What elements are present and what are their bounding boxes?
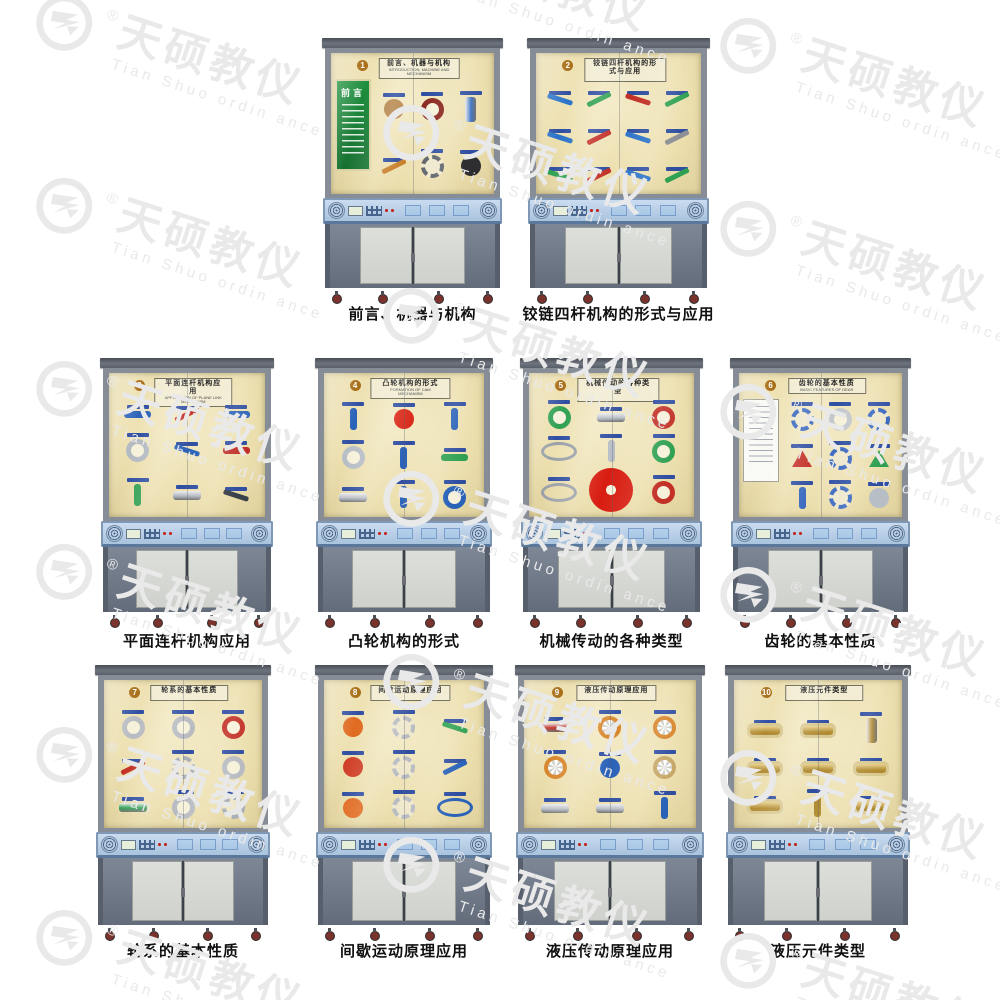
base-cabinet — [530, 224, 707, 288]
glass-door-divider — [818, 680, 819, 828]
exhibit-item — [214, 433, 258, 462]
exhibit-model-shape — [625, 131, 651, 144]
control-panel — [731, 521, 910, 547]
glass-door-divider — [821, 373, 822, 517]
product-caption: 液压元件类型 — [693, 940, 943, 961]
item-label-plate — [791, 481, 813, 485]
panel-diagrams — [590, 839, 679, 850]
exhibit-model-shape — [465, 97, 476, 122]
speaker-grille-icon — [101, 836, 118, 853]
exhibit-item — [536, 468, 583, 512]
item-label-plate — [544, 717, 566, 721]
exhibit-model-shape — [867, 408, 890, 431]
glass-door-divider — [619, 53, 620, 194]
exhibit-model-shape — [546, 131, 572, 144]
stop-button — [584, 843, 587, 846]
cabinet-subtitle: FORMATION OF CAM MECHANISM — [378, 388, 442, 397]
exhibit-item — [211, 750, 256, 779]
keypad — [359, 529, 375, 539]
glass-door-divider — [404, 680, 405, 828]
tianshuo-logo-icon — [26, 534, 102, 610]
exhibit-item — [640, 750, 689, 779]
base-cabinet — [518, 858, 702, 925]
panel-diagrams — [390, 839, 467, 850]
cabinet-title-plate: 轮系的基本性质 — [150, 685, 228, 701]
power-button — [385, 209, 388, 212]
cabinet-door-left — [352, 550, 403, 608]
exhibit-model-shape — [343, 717, 363, 737]
display-case: 7 轮系的基本性质 — [98, 675, 268, 832]
display-case: 6 齿轮的基本性质 BASIC FEATURES OF GEAR — [733, 368, 908, 521]
power-button — [378, 843, 381, 846]
cabinet-figure: 10 液压元件类型 — [728, 665, 908, 933]
item-label-plate — [754, 720, 776, 724]
cabinet-title: 轮系的基本性质 — [158, 687, 220, 695]
speaker-grille-icon — [687, 202, 704, 219]
control-panel — [521, 521, 702, 547]
stop-button — [589, 532, 592, 535]
exhibit-model-shape — [625, 169, 651, 182]
tianshuo-logo-icon — [710, 191, 786, 267]
exhibit-model-shape — [652, 406, 675, 429]
cabinet-figure: 8 间歇运动原理应用 — [318, 665, 490, 933]
cabinet-door-right — [819, 861, 872, 921]
watermark-text-cn: 天硕教仪 — [112, 191, 309, 296]
exhibit-item — [214, 405, 258, 418]
lcd-display — [348, 206, 363, 216]
cabinet-doors — [764, 861, 873, 921]
item-label-plate — [548, 477, 570, 481]
cabinet-figure: 9 液压传动原理应用 — [518, 665, 702, 933]
exhibit-model-shape — [541, 483, 577, 502]
exhibit-item — [785, 402, 820, 431]
exhibit-model-shape — [442, 721, 468, 734]
item-label-plate — [127, 405, 149, 409]
cabinet-title: 平面连杆机构应用 — [162, 380, 224, 396]
keypad — [139, 840, 155, 850]
item-label-plate — [444, 448, 466, 452]
cabinet-door-right — [613, 550, 665, 608]
speaker-grille-icon — [106, 525, 123, 542]
exhibit-model-shape — [437, 798, 473, 817]
product-caption: 铰链四杆机构的形式与应用 — [495, 303, 742, 324]
watermark-text-cn: 天硕教仪 — [112, 8, 309, 113]
exhibit-model-shape — [661, 797, 668, 819]
lcd-display — [546, 529, 561, 539]
glass-door-divider — [612, 373, 613, 517]
tianshuo-logo-icon — [26, 900, 102, 976]
cabinet-doors — [360, 227, 466, 284]
item-label-plate — [868, 402, 890, 406]
speaker-grille-icon — [321, 836, 338, 853]
exhibit-item — [111, 750, 156, 779]
speaker-grille-icon — [682, 836, 699, 853]
exhibit-item — [542, 167, 577, 178]
control-panel — [96, 832, 270, 858]
cabinet-cap — [527, 38, 710, 48]
exhibit-model-shape — [541, 442, 577, 461]
item-label-plate — [868, 444, 890, 448]
tianshuo-logo-icon — [26, 0, 102, 61]
exhibit-model-shape — [343, 798, 363, 818]
exhibit-item — [847, 712, 895, 743]
exhibit-item — [823, 441, 858, 470]
exhibit-item — [214, 478, 258, 506]
lcd-display — [756, 529, 771, 539]
exhibit-model-shape — [124, 411, 151, 418]
registered-mark: ® — [104, 189, 125, 210]
exhibit-item — [741, 712, 789, 743]
exhibit-item — [582, 167, 617, 178]
exhibit-item — [531, 791, 580, 819]
caster-wheel — [842, 618, 852, 628]
exhibit-model-shape — [829, 486, 852, 509]
exhibit-items — [783, 397, 898, 514]
caster-wheel — [370, 618, 380, 628]
cabinet-door-right — [405, 861, 456, 921]
cabinet-figure: 4 凸轮机构的形式 FORMATION OF CAM MECHANISM — [318, 358, 490, 620]
exhibit-model-shape — [421, 155, 444, 178]
watermark-text-en: Tian Shuo ordin ance — [793, 79, 1000, 164]
cabinet-title-plate: 液压传动原理应用 — [576, 685, 656, 701]
cabinet-doors — [352, 550, 456, 608]
tianshuo-logo-icon — [710, 8, 786, 84]
item-label-plate — [654, 710, 676, 714]
cabinet-door-left — [558, 550, 610, 608]
item-label-plate — [127, 433, 149, 437]
item-label-plate — [342, 751, 364, 755]
cabinet-cap — [725, 665, 911, 675]
exhibit-item — [377, 149, 412, 178]
exhibit-item — [640, 468, 687, 512]
cabinet-doors — [136, 550, 237, 608]
door-handle — [185, 576, 189, 585]
cabinet-door-left — [565, 227, 617, 284]
cabinet-title: 液压传动原理应用 — [584, 687, 648, 695]
cabinet-subtitle: INTRODUCTION, MACHINE AND MECHANISM — [386, 68, 452, 77]
exhibit-model-shape — [451, 408, 458, 430]
watermark-text: ®天硕教仪 Tian Shuo ordin ance — [90, 6, 340, 141]
cabinet-cap — [95, 665, 271, 675]
cabinet-title: 间歇运动原理应用 — [378, 687, 442, 695]
cabinet-doors — [554, 861, 665, 921]
item-label-plate — [829, 402, 851, 406]
display-case: 1 前言、机器与机构 INTRODUCTION, MACHINE AND MEC… — [325, 48, 500, 198]
watermark-text-en: Tian Shuo ordin ance — [793, 262, 1000, 347]
exhibit-model-shape — [222, 716, 245, 739]
door-handle — [411, 253, 415, 262]
cabinet-cap — [315, 358, 493, 368]
exhibit-item — [621, 129, 656, 140]
power-button — [578, 843, 581, 846]
tianshuo-logo-icon — [26, 351, 102, 427]
caster-wheel — [105, 931, 115, 941]
cabinet-title-plate: 间歇运动原理应用 — [370, 685, 450, 701]
exhibit-item — [331, 440, 377, 469]
exhibit-item — [582, 129, 617, 140]
registered-mark: ® — [104, 6, 125, 27]
cabinet-cap — [100, 358, 274, 368]
speaker-grille-icon — [328, 202, 345, 219]
exhibit-model-shape — [750, 802, 780, 811]
registered-mark: ® — [788, 29, 809, 50]
lcd-display — [341, 529, 356, 539]
exhibit-item — [542, 91, 577, 102]
exhibit-item — [331, 710, 377, 739]
display-case: 3 平面连杆机构应用 APPLICATION OF PLANE LINK MEC… — [103, 368, 271, 521]
exhibit-items — [375, 77, 490, 191]
caster-wheel — [110, 618, 120, 628]
cabinet-subtitle — [378, 695, 442, 699]
display-case: 2 铰链四杆机构的形式与应用 — [530, 48, 707, 198]
display-case: 8 间歇运动原理应用 — [318, 675, 490, 832]
door-handle — [402, 576, 406, 585]
exhibit-model-shape — [126, 439, 149, 462]
watermark: ®天硕教仪 Tian Shuo ordin ance — [710, 8, 1000, 164]
speaker-grille-icon — [321, 525, 338, 542]
tianshuo-logo-icon — [26, 717, 102, 793]
cabinet-cap — [315, 665, 493, 675]
item-label-plate — [868, 482, 890, 486]
lcd-display — [341, 840, 356, 850]
cabinet-cap — [520, 358, 703, 368]
caster-wheel — [425, 931, 435, 941]
keypad — [359, 840, 375, 850]
exhibit-model-shape — [119, 803, 147, 812]
exhibit-item — [823, 480, 858, 509]
registered-mark: ® — [788, 212, 809, 233]
cabinet-subtitle: BASIC FEATURES OF GEAR — [796, 388, 858, 392]
poster-text-lines — [749, 406, 773, 463]
exhibit-model-shape — [443, 486, 466, 509]
cabinet-door-left — [554, 861, 609, 921]
caster-wheel — [640, 294, 650, 304]
item-label-plate — [222, 790, 244, 794]
power-button — [583, 532, 586, 535]
exhibit-item — [432, 790, 478, 819]
keypad — [571, 206, 587, 216]
item-label-plate — [222, 710, 244, 714]
exhibit-model-shape — [792, 450, 812, 467]
caster-wheel — [425, 618, 435, 628]
cabinet-title: 铰链四杆机构的形式与应用 — [592, 60, 659, 76]
exhibit-item — [640, 400, 687, 429]
caster-wheel — [325, 618, 335, 628]
cabinet-subtitle — [793, 695, 855, 699]
caster-wheel — [378, 294, 388, 304]
watermark-text: ®天硕教仪 Tian Shuo ordin ance — [774, 29, 1000, 164]
cabinet-number-badge: 4 — [350, 380, 361, 391]
cabinet-title: 机械传动的各种类型 — [585, 380, 652, 396]
watermark-text-cn: 天硕教仪 — [796, 31, 993, 136]
exhibit-model-shape — [829, 408, 852, 431]
exhibit-model-shape — [750, 726, 780, 735]
product-caption: 齿轮的基本性质 — [698, 630, 943, 651]
exhibit-item — [331, 480, 377, 509]
cabinet-number-badge: 7 — [129, 687, 140, 698]
item-label-plate — [342, 440, 364, 444]
cabinet-number-badge: 2 — [562, 60, 573, 71]
speaker-grille-icon — [888, 836, 905, 853]
base-cabinet — [98, 858, 268, 925]
item-label-plate — [460, 91, 482, 95]
exhibit-item — [823, 402, 858, 431]
exhibit-item — [432, 750, 478, 779]
exhibit-model-shape — [222, 756, 245, 779]
cabinet-subtitle — [584, 695, 648, 699]
exhibit-item — [531, 710, 580, 739]
cabinet-cap — [322, 38, 503, 48]
cabinet-number-badge: 1 — [357, 60, 368, 71]
item-label-plate — [654, 791, 676, 795]
speaker-grille-icon — [526, 525, 543, 542]
watermark: ®天硕教仪 Tian Shuo ordin ance — [710, 923, 1000, 1000]
exhibit-model-shape — [856, 802, 886, 811]
control-panel — [101, 521, 273, 547]
exhibit-item — [454, 149, 489, 178]
exhibit-item — [660, 167, 695, 178]
exhibit-item — [432, 402, 478, 430]
cabinet-door-left — [352, 861, 403, 921]
display-case: 4 凸轮机构的形式 FORMATION OF CAM MECHANISM — [318, 368, 490, 521]
item-label-plate — [122, 710, 144, 714]
glass-door-divider — [610, 680, 611, 828]
exhibit-item — [432, 710, 478, 739]
door-handle — [617, 253, 621, 262]
stop-button — [384, 532, 387, 535]
item-label-plate — [421, 92, 443, 96]
exhibit-model-shape — [134, 484, 141, 506]
keypad — [774, 529, 790, 539]
speaker-grille-icon — [251, 525, 268, 542]
cabinet-door-right — [611, 861, 666, 921]
item-label-plate — [127, 478, 149, 482]
item-label-plate — [225, 405, 247, 409]
exhibit-item — [640, 710, 689, 739]
keypad — [769, 840, 785, 850]
chart-poster — [743, 399, 779, 514]
base-cabinet — [318, 547, 490, 612]
cabinet-doors — [352, 861, 456, 921]
cabinet-number-badge: 8 — [350, 687, 361, 698]
stop-button — [384, 843, 387, 846]
caster-wheel — [740, 618, 750, 628]
item-label-plate — [860, 712, 882, 716]
exhibit-item — [536, 434, 583, 463]
exhibit-item — [454, 91, 489, 122]
lcd-display — [541, 840, 556, 850]
cabinet-number-badge: 6 — [765, 380, 776, 391]
caster-wheel — [332, 294, 342, 304]
item-label-plate — [342, 711, 364, 715]
catalog-page: 1 前言、机器与机构 INTRODUCTION, MACHINE AND MEC… — [0, 0, 1000, 1000]
cabinet-door-right — [405, 550, 456, 608]
caster-wheel — [473, 931, 483, 941]
exhibit-model-shape — [866, 718, 877, 743]
exhibit-item — [211, 710, 256, 739]
exhibit-item — [111, 790, 156, 819]
exhibit-item — [542, 129, 577, 140]
exhibit-item — [621, 167, 656, 178]
exhibit-item — [531, 750, 580, 779]
caster-wheel — [434, 294, 444, 304]
door-handle — [181, 888, 185, 897]
caster-wheel — [251, 931, 261, 941]
exhibit-item — [536, 400, 583, 429]
exhibit-item — [331, 790, 377, 819]
exhibit-item — [785, 441, 820, 470]
exhibit-item — [660, 129, 695, 140]
exhibit-model-shape — [461, 156, 481, 176]
glass-door-divider — [183, 680, 184, 828]
exhibit-model-shape — [829, 447, 852, 470]
exhibit-item — [741, 758, 789, 773]
exhibit-item — [660, 91, 695, 102]
exhibit-model-shape — [548, 406, 571, 429]
caster-wheel — [633, 618, 643, 628]
item-label-plate — [653, 475, 675, 479]
cabinet-doors — [565, 227, 672, 284]
glass-door-divider — [187, 373, 188, 517]
cabinet-title-plate: 液压元件类型 — [785, 685, 863, 701]
cabinet-number-badge: 5 — [555, 380, 566, 391]
exhibit-item — [432, 440, 478, 469]
item-label-plate — [544, 750, 566, 754]
exhibit-model-shape — [625, 93, 651, 106]
exhibit-model-shape — [421, 98, 444, 121]
cabinet-title: 液压元件类型 — [793, 687, 855, 695]
control-panel — [316, 832, 492, 858]
caster-wheel — [370, 931, 380, 941]
keypad — [559, 840, 575, 850]
cabinet-door-left — [136, 550, 186, 608]
speaker-grille-icon — [248, 836, 265, 853]
panel-diagrams — [390, 528, 467, 539]
caster-wheel — [682, 618, 692, 628]
keypad — [564, 529, 580, 539]
base-cabinet — [733, 547, 908, 612]
cabinet-number-badge: 10 — [761, 687, 772, 698]
watermark-text-en: Tian Shuo ordin ance — [793, 994, 1000, 1000]
control-panel — [323, 198, 502, 224]
cabinet-door-left — [764, 861, 817, 921]
caster-wheel — [530, 618, 540, 628]
caster-wheel — [786, 618, 796, 628]
exhibit-model-shape — [339, 493, 367, 502]
lcd-display — [553, 206, 568, 216]
cabinet-figure: 1 前言、机器与机构 INTRODUCTION, MACHINE AND MEC… — [325, 38, 500, 296]
exhibit-item — [331, 750, 377, 779]
exhibit-item — [741, 789, 789, 817]
exhibit-item — [331, 402, 377, 430]
speaker-grille-icon — [888, 525, 905, 542]
foreword-title: 前言 — [337, 86, 369, 99]
panel-diagrams — [602, 205, 684, 216]
cabinet-subtitle — [158, 695, 220, 699]
tianshuo-logo-icon — [26, 168, 102, 244]
exhibit-model-shape — [652, 440, 675, 463]
base-cabinet — [523, 547, 700, 612]
item-label-plate — [444, 792, 466, 796]
foreword-panel: 前言 — [335, 79, 371, 191]
item-label-plate — [460, 150, 482, 154]
caster-wheel — [890, 931, 900, 941]
item-label-plate — [860, 796, 882, 800]
watermark: ®天硕教仪 Tian Shuo ordin ance — [26, 168, 340, 324]
watermark-text: ®天硕教仪 Tian Shuo ordin ance — [774, 212, 1000, 347]
power-button — [158, 843, 161, 846]
caster-wheel — [153, 618, 163, 628]
